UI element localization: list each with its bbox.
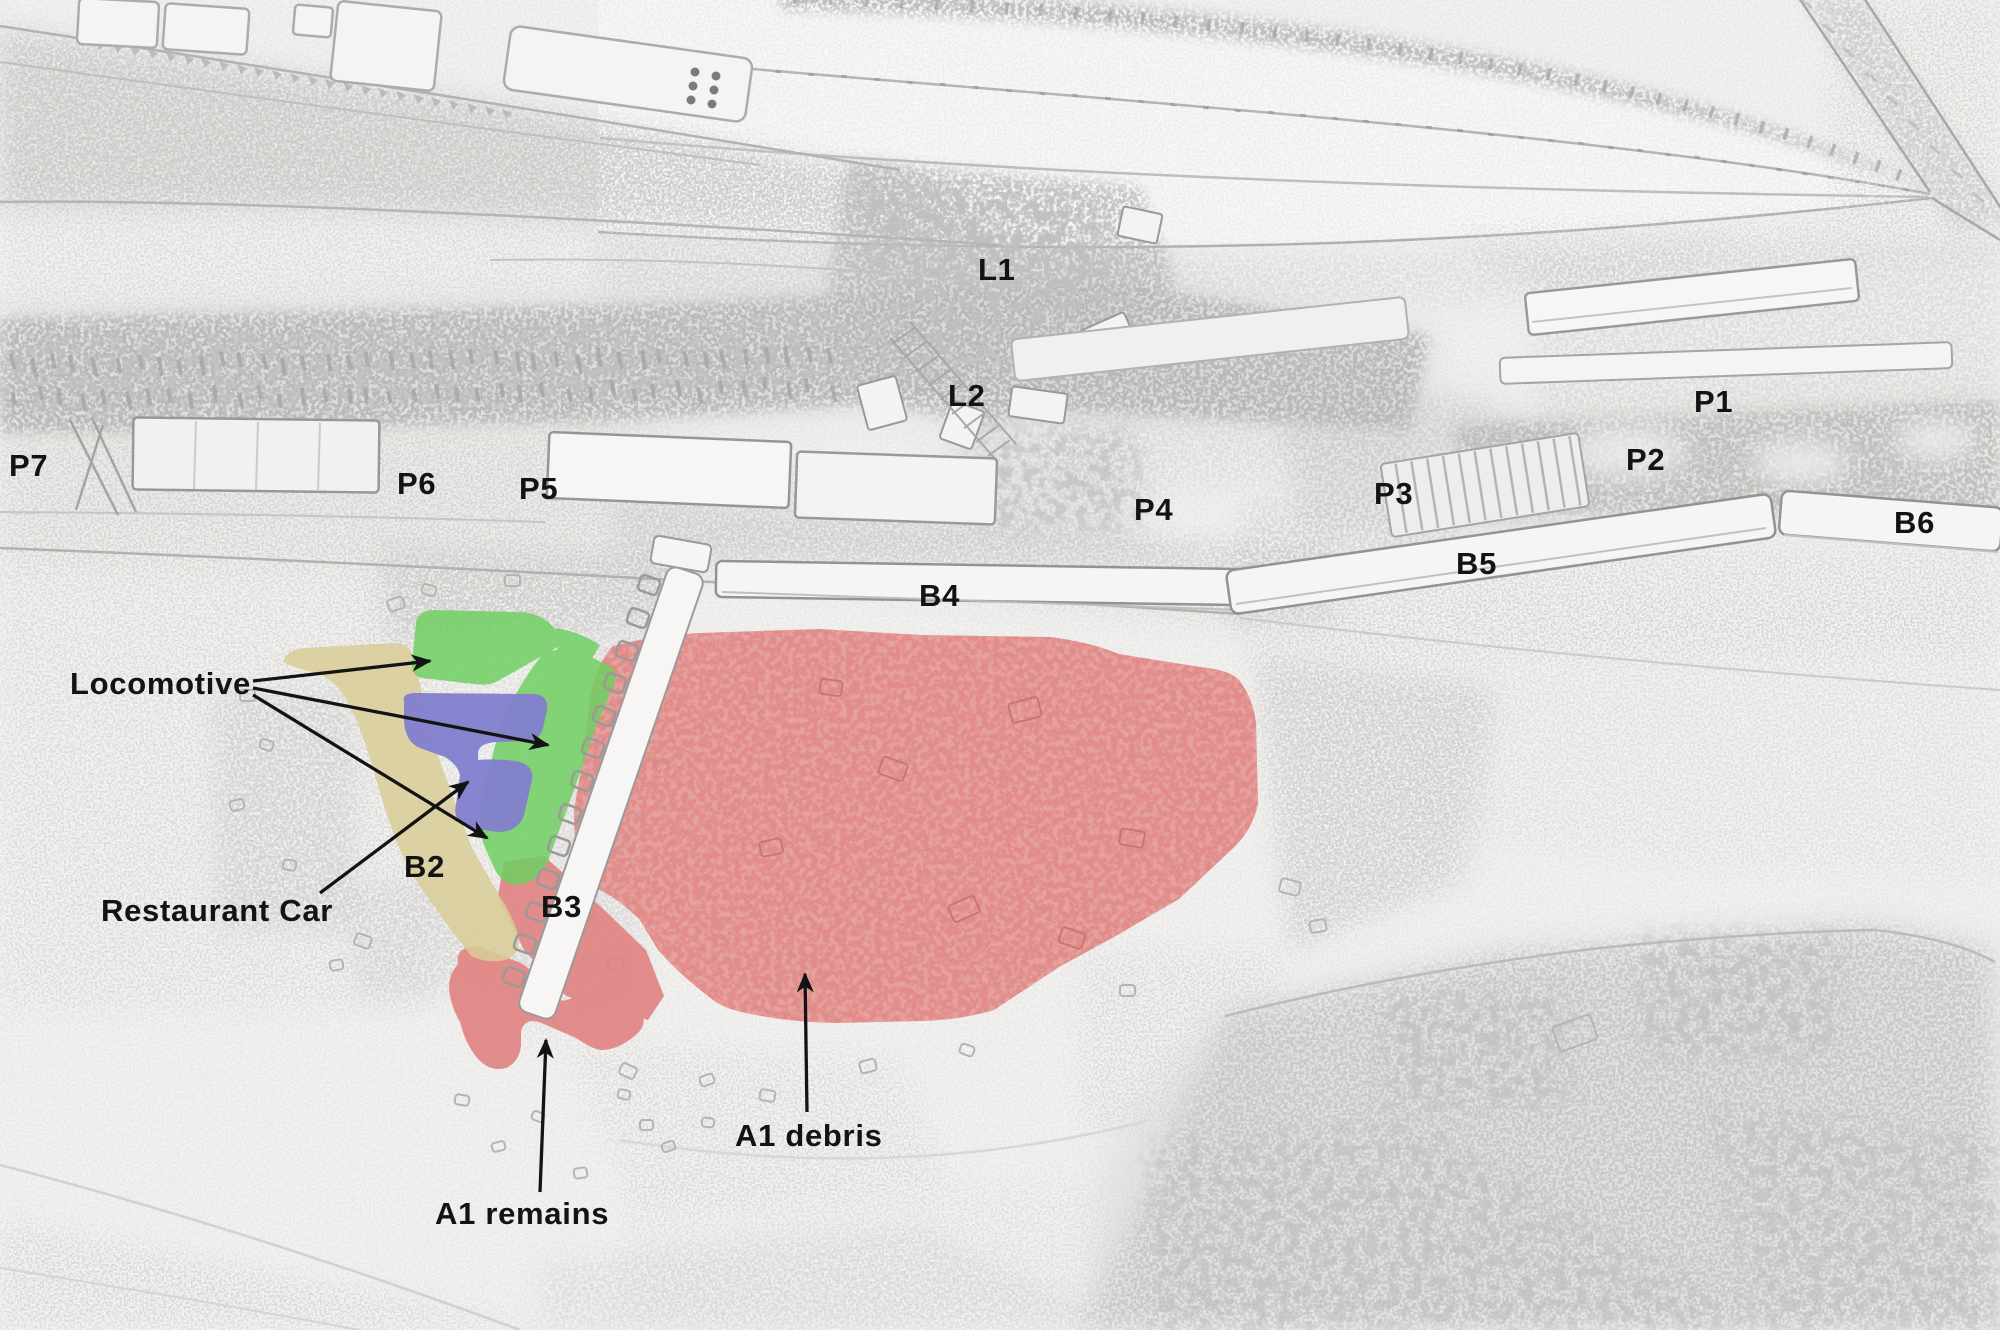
svg-text:B4: B4	[919, 578, 960, 613]
svg-text:L1: L1	[978, 252, 1016, 287]
svg-text:P6: P6	[397, 466, 436, 501]
svg-text:Locomotive: Locomotive	[70, 666, 251, 701]
svg-text:P2: P2	[1626, 442, 1665, 477]
svg-text:L2: L2	[948, 378, 986, 413]
svg-text:P7: P7	[9, 448, 48, 483]
svg-text:P5: P5	[519, 471, 558, 506]
svg-text:B6: B6	[1894, 505, 1935, 540]
svg-text:B2: B2	[404, 849, 445, 884]
svg-text:B3: B3	[541, 889, 582, 924]
svg-text:P3: P3	[1374, 476, 1413, 511]
svg-text:A1 remains: A1 remains	[435, 1196, 609, 1231]
svg-text:P4: P4	[1134, 492, 1173, 527]
svg-text:A1 debris: A1 debris	[735, 1118, 883, 1153]
svg-text:P1: P1	[1694, 384, 1733, 419]
svg-text:B5: B5	[1456, 546, 1497, 581]
svg-text:Restaurant Car: Restaurant Car	[101, 893, 333, 928]
